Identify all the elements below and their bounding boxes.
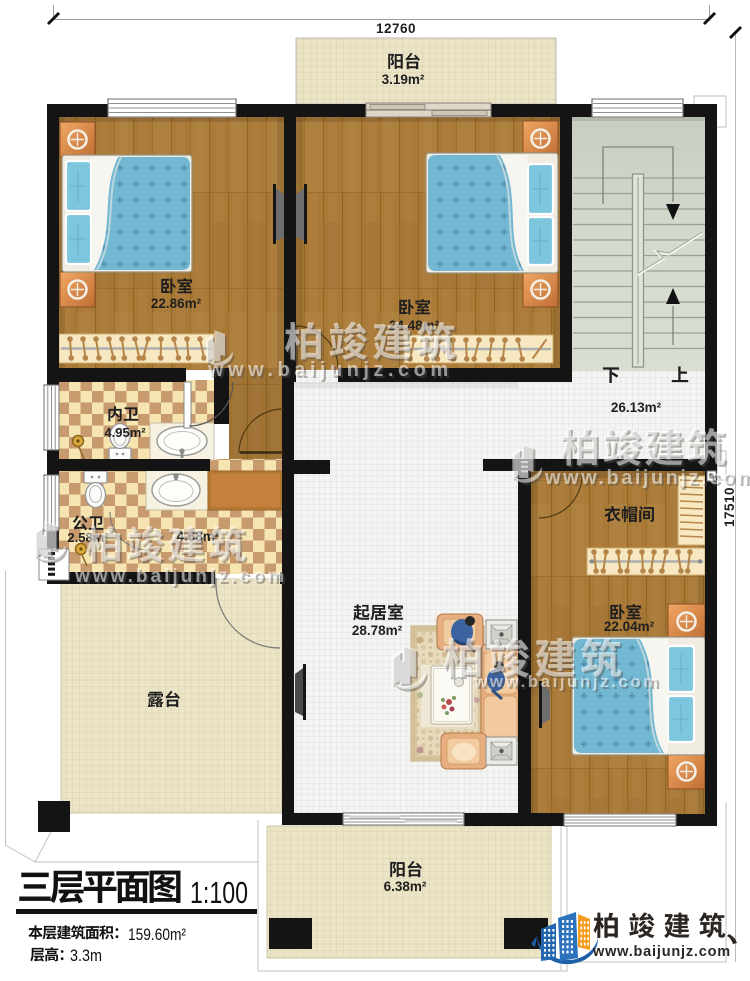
svg-text:4.95m²: 4.95m²	[104, 425, 146, 440]
svg-text:www.baijunjz.com: www.baijunjz.com	[592, 944, 731, 960]
svg-text:www.baijunjz.com: www.baijunjz.com	[74, 566, 287, 587]
svg-text:17510: 17510	[722, 487, 737, 527]
svg-text:28.78m²: 28.78m²	[352, 623, 403, 638]
svg-text:26.13m²: 26.13m²	[611, 400, 662, 415]
svg-text:1:100: 1:100	[190, 875, 248, 910]
svg-text:22.86m²: 22.86m²	[151, 296, 202, 311]
svg-text:www.baijunjz.com: www.baijunjz.com	[544, 467, 750, 489]
svg-text:12760: 12760	[376, 21, 416, 36]
svg-text:3.19m²: 3.19m²	[382, 72, 425, 87]
svg-text:6.38m²: 6.38m²	[384, 879, 427, 894]
svg-text:www.baijunjz.com: www.baijunjz.com	[473, 672, 661, 691]
svg-text:3.3m: 3.3m	[70, 946, 102, 965]
svg-text:159.60m²: 159.60m²	[128, 925, 186, 944]
svg-text:www.baijunjz.com: www.baijunjz.com	[207, 359, 453, 381]
svg-text:22.04m²: 22.04m²	[604, 619, 655, 634]
